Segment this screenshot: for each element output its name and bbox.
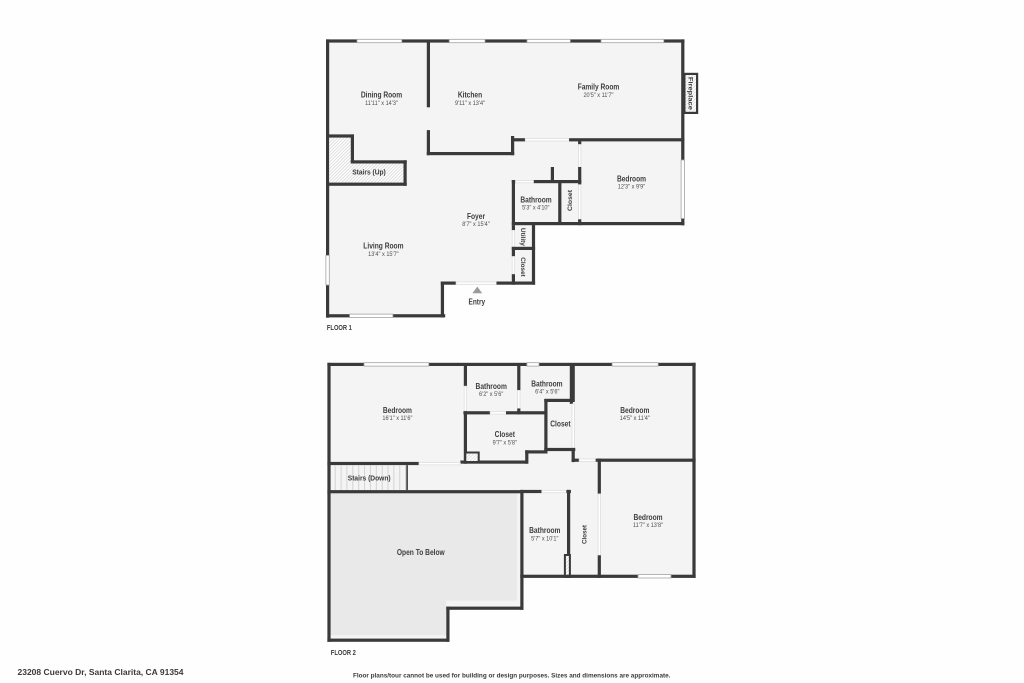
svg-text:Bedroom: Bedroom	[633, 513, 662, 522]
svg-text:Closet: Closet	[550, 420, 571, 429]
svg-text:Bedroom: Bedroom	[620, 406, 649, 415]
svg-text:13'4" x 15'7": 13'4" x 15'7"	[368, 251, 399, 258]
svg-text:Bathroom: Bathroom	[520, 195, 551, 204]
svg-text:Closet: Closet	[495, 430, 516, 439]
svg-text:Bathroom: Bathroom	[531, 379, 562, 388]
svg-text:FLOOR 1: FLOOR 1	[327, 323, 352, 332]
svg-text:Fireplace: Fireplace	[687, 77, 694, 111]
svg-text:Bedroom: Bedroom	[383, 406, 412, 415]
svg-text:Closet: Closet	[519, 257, 526, 277]
svg-text:Bathroom: Bathroom	[529, 526, 560, 535]
svg-text:Closet: Closet	[567, 189, 574, 211]
svg-text:20'5" x 11'7": 20'5" x 11'7"	[583, 92, 613, 99]
svg-text:Entry: Entry	[469, 298, 486, 307]
svg-text:Bedroom: Bedroom	[617, 174, 646, 183]
svg-text:6'4" x 5'6": 6'4" x 5'6"	[535, 389, 559, 396]
svg-text:Bathroom: Bathroom	[476, 382, 507, 391]
svg-text:Foyer: Foyer	[467, 212, 486, 221]
svg-text:Living Room: Living Room	[363, 242, 403, 251]
svg-text:12'3" x 9'9": 12'3" x 9'9"	[618, 184, 645, 191]
svg-text:Kitchen: Kitchen	[458, 91, 482, 100]
svg-text:14'5" x 11'4": 14'5" x 11'4"	[620, 415, 650, 422]
svg-text:16'1" x 11'6": 16'1" x 11'6"	[382, 415, 412, 422]
svg-text:Stairs (Down): Stairs (Down)	[348, 473, 391, 482]
svg-text:9'11" x 13'4": 9'11" x 13'4"	[455, 100, 485, 107]
svg-text:Open To Below: Open To Below	[397, 548, 445, 557]
svg-text:8'7" x 15'4": 8'7" x 15'4"	[462, 221, 489, 228]
svg-text:5'3" x 4'10": 5'3" x 4'10"	[522, 205, 549, 212]
svg-text:Floor plans/tour cannot be use: Floor plans/tour cannot be used for buil…	[353, 672, 671, 679]
svg-text:FLOOR 2: FLOOR 2	[331, 648, 356, 657]
svg-text:23208 Cuervo Dr, Santa Clarita: 23208 Cuervo Dr, Santa Clarita, CA 91354	[18, 668, 184, 677]
svg-text:9'7" x 5'8": 9'7" x 5'8"	[493, 439, 517, 446]
svg-text:Dining Room: Dining Room	[361, 91, 402, 100]
svg-text:Utility: Utility	[519, 228, 526, 246]
svg-text:5'7" x 10'1": 5'7" x 10'1"	[531, 535, 558, 542]
svg-text:Family Room: Family Room	[578, 83, 620, 92]
svg-text:11'11" x 14'3": 11'11" x 14'3"	[365, 100, 398, 107]
svg-text:11'7" x 13'8": 11'7" x 13'8"	[633, 522, 663, 529]
svg-text:6'2" x 5'6": 6'2" x 5'6"	[479, 391, 503, 398]
svg-text:Closet: Closet	[582, 524, 589, 544]
svg-text:Stairs (Up): Stairs (Up)	[352, 168, 386, 177]
